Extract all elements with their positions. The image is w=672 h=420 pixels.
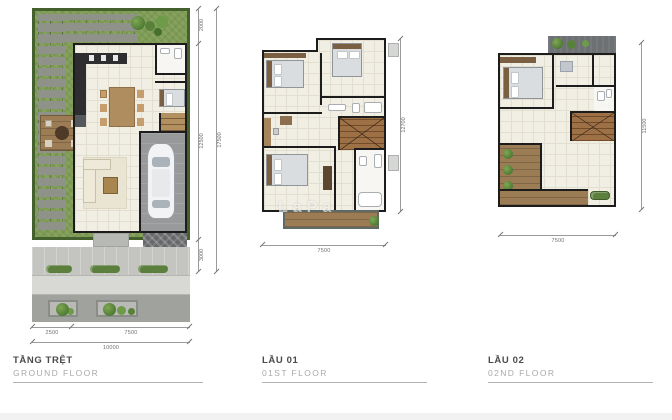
- terrace-horizontal: [500, 189, 588, 205]
- ground-floor-plan: 2500 7500 10000 2000 12500 3000 17500: [30, 5, 242, 355]
- dimension-line: [32, 342, 190, 343]
- deck-chairs: [45, 120, 52, 127]
- bathroom-ground: [155, 45, 185, 75]
- plan-title: LẦU 01: [262, 355, 427, 366]
- coffee-table: [103, 177, 118, 194]
- plan-subtitle: 02ND FLOOR: [488, 368, 653, 378]
- deck-table: [55, 126, 69, 140]
- balcony-plant: [369, 216, 379, 226]
- entry-porch: [93, 233, 129, 247]
- floor1-outline: [262, 38, 386, 212]
- title-underline: [13, 382, 203, 383]
- house-outline: [73, 43, 187, 233]
- garden-bushes: [131, 16, 145, 30]
- wall-segment: [264, 112, 322, 114]
- kitchen-appliances: [89, 55, 121, 61]
- title-block-floor2: LẦU 02 02ND FLOOR: [488, 355, 653, 383]
- dimension-line: [32, 327, 190, 328]
- terrace-plant: [503, 165, 513, 175]
- tree: [56, 303, 69, 316]
- sink: [374, 154, 382, 168]
- car-windshield: [152, 157, 170, 167]
- car-roof: [152, 169, 170, 197]
- desk: [264, 118, 271, 146]
- dimension-label: 10000: [32, 345, 190, 351]
- dimension-line: [500, 235, 616, 236]
- wardrobe: [264, 53, 306, 58]
- toilet: [359, 156, 367, 166]
- sink: [606, 89, 612, 98]
- shower: [364, 102, 382, 113]
- master-bed: [266, 154, 308, 186]
- plan-title: TẦNG TRỆT: [13, 355, 203, 366]
- plan-subtitle: GROUND FLOOR: [13, 368, 203, 378]
- dimension-label: 7500: [262, 248, 386, 254]
- front-yard: [32, 247, 190, 275]
- washer: [560, 61, 573, 72]
- shrub: [46, 265, 72, 273]
- toilet: [174, 48, 182, 59]
- building-notch: [262, 38, 318, 52]
- shrub: [90, 265, 120, 273]
- dimension-label: 12500: [198, 119, 206, 163]
- wall-segment: [155, 81, 185, 83]
- fridge: [75, 115, 86, 127]
- tree: [103, 303, 116, 316]
- dimension-label: 2000: [198, 3, 206, 47]
- media-console: [323, 166, 332, 190]
- second-floor-plan: 7500 11500: [492, 30, 652, 255]
- dimension-label: 7500: [72, 330, 190, 336]
- floor2-outline: [498, 53, 616, 207]
- bed: [503, 67, 543, 99]
- maid-bed: [159, 89, 185, 107]
- tree-planter: [48, 300, 78, 317]
- dimension-line: [262, 245, 386, 246]
- street: [32, 275, 190, 295]
- bathtub: [358, 192, 382, 207]
- watermark: LaPa: [278, 199, 336, 217]
- kitchen-counter-side: [75, 53, 86, 115]
- dimension-label: 7500: [500, 238, 616, 244]
- bathroom-floor1: [354, 148, 384, 210]
- dining-chairs: [100, 90, 107, 98]
- floorplan-sheet: 2500 7500 10000 2000 12500 3000 17500: [0, 0, 672, 420]
- stairs-floor1: [338, 116, 384, 150]
- toilet: [597, 91, 605, 101]
- car: [147, 143, 175, 219]
- car-rear-window: [152, 200, 170, 208]
- dimension-label: 17500: [216, 118, 224, 162]
- ac-ledge: [388, 43, 399, 57]
- desk-chair: [273, 128, 279, 135]
- title-underline: [262, 382, 427, 383]
- title-block-floor1: LẦU 01 01ST FLOOR: [262, 355, 427, 383]
- wall-segment: [592, 55, 594, 87]
- dimension-label: 3000: [198, 233, 206, 277]
- terrace-plant: [503, 149, 513, 159]
- first-floor-plan: LaPa 7500 12700: [258, 33, 418, 263]
- wall-segment: [500, 107, 554, 109]
- dining-table: [109, 87, 135, 127]
- plan-title: LẦU 02: [488, 355, 653, 366]
- bed: [332, 43, 362, 77]
- wall-segment: [322, 96, 384, 98]
- tree-planter: [96, 300, 138, 317]
- title-underline: [488, 382, 653, 383]
- dimension-label: 12700: [400, 103, 408, 147]
- cabinet: [280, 116, 292, 125]
- wall-segment: [552, 55, 554, 109]
- wardrobe: [500, 57, 536, 63]
- bottom-strip: [0, 413, 672, 420]
- plan-subtitle: 01ST FLOOR: [262, 368, 427, 378]
- driveway: [143, 232, 187, 247]
- dimension-label: 11500: [641, 104, 649, 148]
- bathroom-floor2: [594, 87, 614, 111]
- wall-segment: [264, 146, 334, 148]
- sidewalk: [32, 295, 190, 322]
- roof-plants: [552, 38, 563, 49]
- stairs-floor2: [570, 111, 614, 141]
- sink: [328, 104, 346, 111]
- sink: [160, 48, 170, 54]
- toilet: [352, 103, 360, 113]
- planter-box: [590, 191, 610, 200]
- shrub: [138, 265, 168, 273]
- dimension-label: 2500: [32, 330, 72, 336]
- bed: [266, 60, 304, 88]
- ac-ledge: [388, 155, 399, 171]
- sofa-arm: [83, 159, 111, 170]
- title-block-ground: TẦNG TRỆT GROUND FLOOR: [13, 355, 203, 383]
